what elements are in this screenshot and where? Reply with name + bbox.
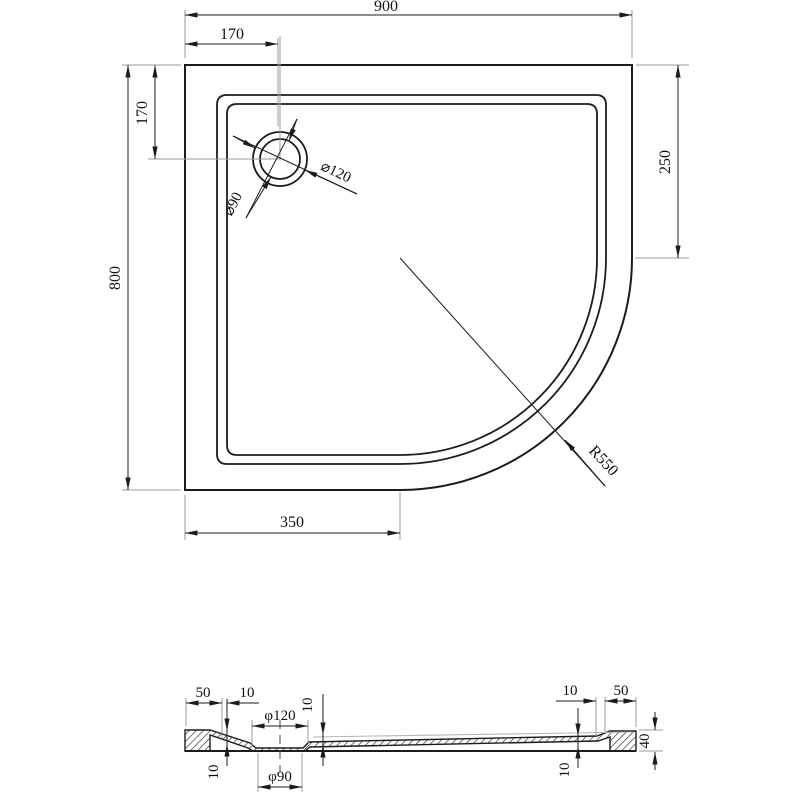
dim-drain-bottom-label: φ90 xyxy=(268,769,292,785)
dim-bottom-edge-350: 350 xyxy=(185,492,400,540)
dim-left-rim-label: 50 xyxy=(196,685,211,701)
dim-drain-offset-x-label: 170 xyxy=(220,26,244,43)
dim-right-depth-label: 10 xyxy=(557,763,573,778)
dim-section-right-depth-10: 10 xyxy=(557,708,578,778)
dim-left-step-label: 10 xyxy=(240,685,255,701)
dim-drain-inner-dia-90: ⌀90 xyxy=(221,119,297,219)
dim-width-900: 900 xyxy=(185,0,632,58)
technical-drawing: 900 170 170 800 250 xyxy=(0,0,800,800)
dim-radius-label: R550 xyxy=(585,442,621,479)
dim-section-right-rim-50: 50 xyxy=(605,683,636,733)
tray-rim-outer-line xyxy=(217,95,606,464)
dim-section-height-40: 40 xyxy=(637,712,663,770)
dim-section-right-step-10: 10 xyxy=(556,683,596,736)
dim-drain-offset-x-170: 170 xyxy=(185,26,278,126)
dim-drain-offset-y-170: 170 xyxy=(134,65,155,159)
dim-section-center-depth-10: 10 xyxy=(300,694,323,766)
dim-right-rim-label: 50 xyxy=(614,683,629,699)
diameter-arrow xyxy=(233,136,255,148)
dim-right-step-label: 10 xyxy=(563,683,578,699)
section-view: 50 10 φ120 10 10 xyxy=(185,683,663,792)
dim-height-label: 40 xyxy=(637,734,653,749)
dim-drain-outer-label: ⌀120 xyxy=(318,158,353,186)
tray-outer-edge xyxy=(185,65,632,490)
diameter-arrow xyxy=(246,177,271,218)
dim-drain-top-label: φ120 xyxy=(264,708,295,724)
dim-left-depth-label: 10 xyxy=(206,765,222,780)
tray-rim-inner-line xyxy=(227,104,597,455)
dim-right-edge-250: 250 xyxy=(635,65,689,258)
dim-depth-label: 800 xyxy=(107,266,124,290)
dim-depth-800: 800 xyxy=(107,65,181,490)
drawing-canvas: 900 170 170 800 250 xyxy=(0,0,800,800)
dim-width-label: 900 xyxy=(374,0,398,15)
plan-view: 900 170 170 800 250 xyxy=(107,0,689,540)
dim-bottom-edge-label: 350 xyxy=(280,514,304,531)
dim-right-edge-label: 250 xyxy=(657,150,674,174)
dim-drain-inner-label: ⌀90 xyxy=(221,190,246,219)
dim-center-depth-label: 10 xyxy=(300,698,316,713)
dim-drain-offset-y-label: 170 xyxy=(134,101,151,125)
dim-section-left-step-10: 10 xyxy=(227,685,259,703)
